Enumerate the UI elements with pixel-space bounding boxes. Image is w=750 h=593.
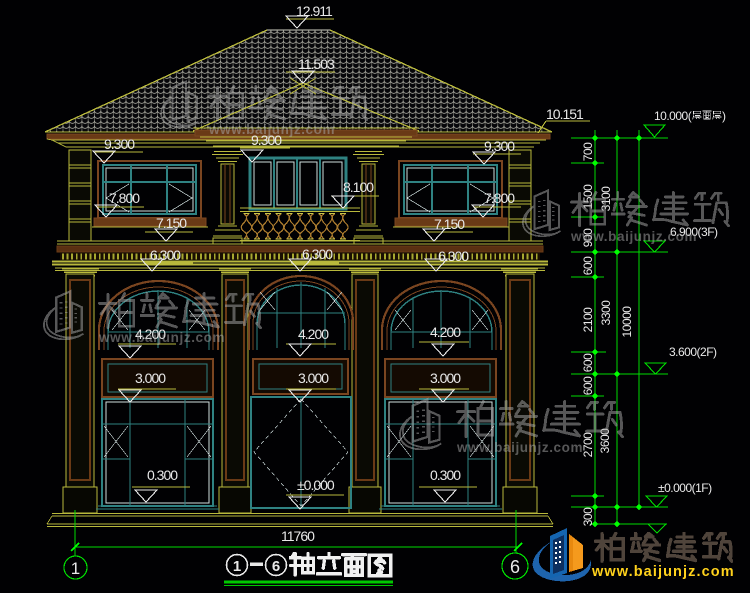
svg-text:±0.000(1F): ±0.000(1F)	[658, 481, 712, 495]
svg-text:www.baijunjz.com: www.baijunjz.com	[591, 564, 735, 580]
svg-text:1: 1	[71, 559, 80, 578]
svg-text:1: 1	[233, 558, 241, 575]
svg-text:6.300: 6.300	[438, 248, 469, 264]
svg-text:7.150: 7.150	[434, 216, 465, 232]
svg-text:www.baijunjz.com: www.baijunjz.com	[570, 229, 697, 244]
svg-text:600: 600	[581, 376, 595, 395]
svg-text:3300: 3300	[599, 300, 613, 326]
svg-text:6.300: 6.300	[302, 246, 333, 262]
svg-text:11.503: 11.503	[298, 56, 335, 72]
svg-text:4.200: 4.200	[430, 324, 461, 340]
svg-text:10.151: 10.151	[546, 106, 584, 122]
svg-text:0.300: 0.300	[147, 467, 178, 483]
svg-text:4.200: 4.200	[298, 326, 329, 342]
svg-text:10.000(: 10.000(	[654, 109, 692, 123]
svg-text:): )	[722, 109, 726, 123]
svg-text:9.300: 9.300	[104, 136, 135, 152]
svg-text:10000: 10000	[620, 306, 634, 338]
svg-text:600: 600	[581, 256, 595, 275]
svg-text:300: 300	[581, 507, 595, 526]
svg-text:700: 700	[581, 142, 595, 161]
svg-text:600: 600	[581, 353, 595, 372]
svg-text:3.600(2F): 3.600(2F)	[669, 345, 717, 359]
svg-text:www.baijunjz.com: www.baijunjz.com	[98, 330, 225, 345]
svg-text:±0.000: ±0.000	[297, 477, 335, 493]
svg-text:7.800: 7.800	[484, 190, 515, 206]
svg-text:3.000: 3.000	[298, 370, 329, 386]
svg-text:11760: 11760	[281, 528, 315, 544]
svg-text:6: 6	[510, 557, 520, 577]
svg-text:2100: 2100	[581, 307, 595, 333]
svg-text:3.000: 3.000	[135, 370, 166, 386]
svg-text:7.800: 7.800	[109, 190, 140, 206]
svg-text:0.300: 0.300	[430, 467, 461, 483]
svg-text:6: 6	[272, 558, 280, 575]
svg-text:3.000: 3.000	[430, 370, 461, 386]
svg-text:12.911: 12.911	[296, 3, 333, 19]
svg-text:6.300: 6.300	[150, 247, 181, 263]
svg-text:www.baijunjz.com: www.baijunjz.com	[456, 440, 583, 455]
svg-text:8.100: 8.100	[343, 179, 374, 195]
svg-text:www.baijunjz.com: www.baijunjz.com	[208, 122, 335, 137]
